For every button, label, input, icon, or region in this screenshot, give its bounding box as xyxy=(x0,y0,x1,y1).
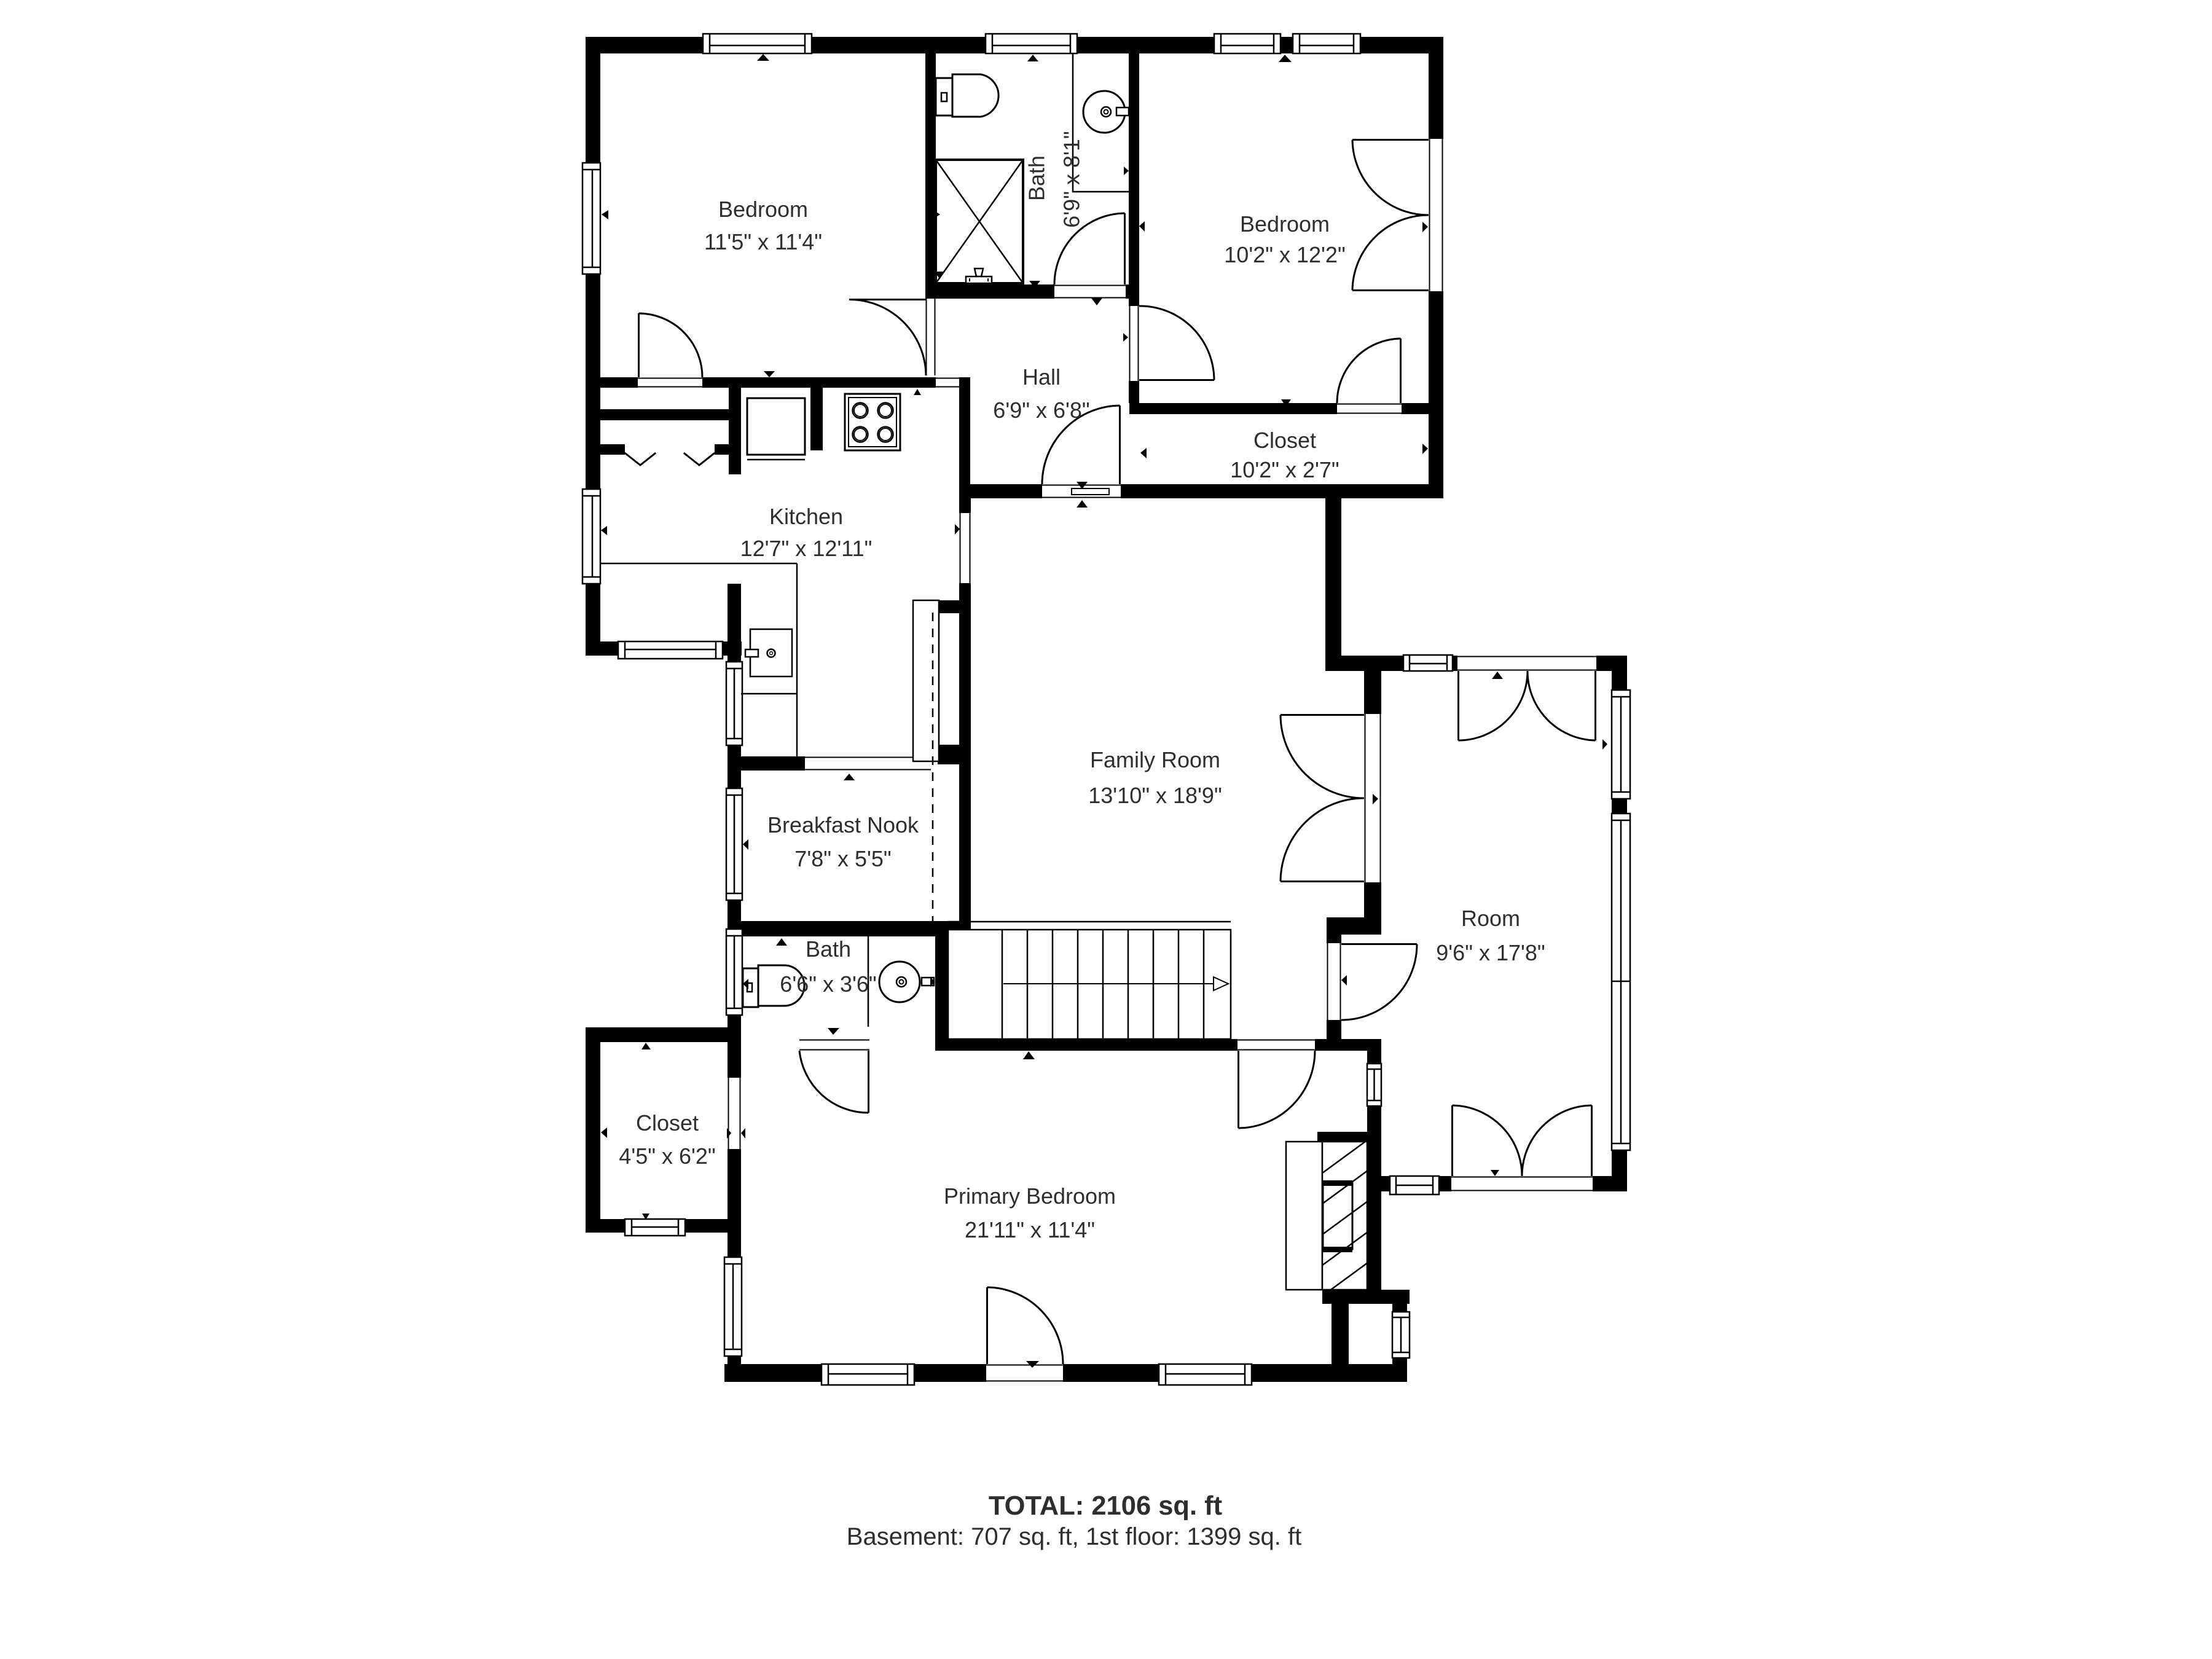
svg-text:12'7" x 12'11": 12'7" x 12'11" xyxy=(740,536,873,561)
svg-text:Room: Room xyxy=(1461,906,1520,931)
svg-text:Basement: 707 sq. ft, 1st floo: Basement: 707 sq. ft, 1st floor: 1399 sq… xyxy=(847,1523,1301,1550)
svg-text:TOTAL: 2106 sq. ft: TOTAL: 2106 sq. ft xyxy=(989,1491,1222,1521)
svg-text:6'9" x 6'8": 6'9" x 6'8" xyxy=(993,398,1089,423)
svg-text:Hall: Hall xyxy=(1022,364,1061,390)
svg-text:Family Room: Family Room xyxy=(1090,747,1220,772)
svg-text:21'11" x 11'4": 21'11" x 11'4" xyxy=(965,1217,1095,1242)
svg-text:7'8" x 5'5": 7'8" x 5'5" xyxy=(794,846,891,871)
svg-text:13'10" x 18'9": 13'10" x 18'9" xyxy=(1088,783,1222,808)
svg-text:6'6" x 3'6": 6'6" x 3'6" xyxy=(780,971,876,997)
svg-text:4'5" x 6'2": 4'5" x 6'2" xyxy=(619,1143,715,1169)
svg-text:Closet: Closet xyxy=(1253,428,1316,453)
svg-text:10'2" x 12'2": 10'2" x 12'2" xyxy=(1224,242,1345,267)
svg-text:9'6" x 17'8": 9'6" x 17'8" xyxy=(1436,940,1545,965)
svg-text:10'2" x 2'7": 10'2" x 2'7" xyxy=(1230,457,1339,482)
svg-text:11'5" x 11'4": 11'5" x 11'4" xyxy=(704,229,822,254)
svg-text:Bedroom: Bedroom xyxy=(1240,211,1330,237)
svg-text:Bedroom: Bedroom xyxy=(718,197,808,222)
svg-text:Bath: Bath xyxy=(1024,155,1049,201)
svg-text:6'9" x 8'1": 6'9" x 8'1" xyxy=(1059,131,1084,227)
svg-text:Kitchen: Kitchen xyxy=(769,504,843,529)
svg-text:Primary Bedroom: Primary Bedroom xyxy=(944,1183,1116,1209)
svg-text:Breakfast Nook: Breakfast Nook xyxy=(767,812,919,837)
svg-text:Closet: Closet xyxy=(636,1110,699,1135)
svg-text:Bath: Bath xyxy=(806,936,851,962)
